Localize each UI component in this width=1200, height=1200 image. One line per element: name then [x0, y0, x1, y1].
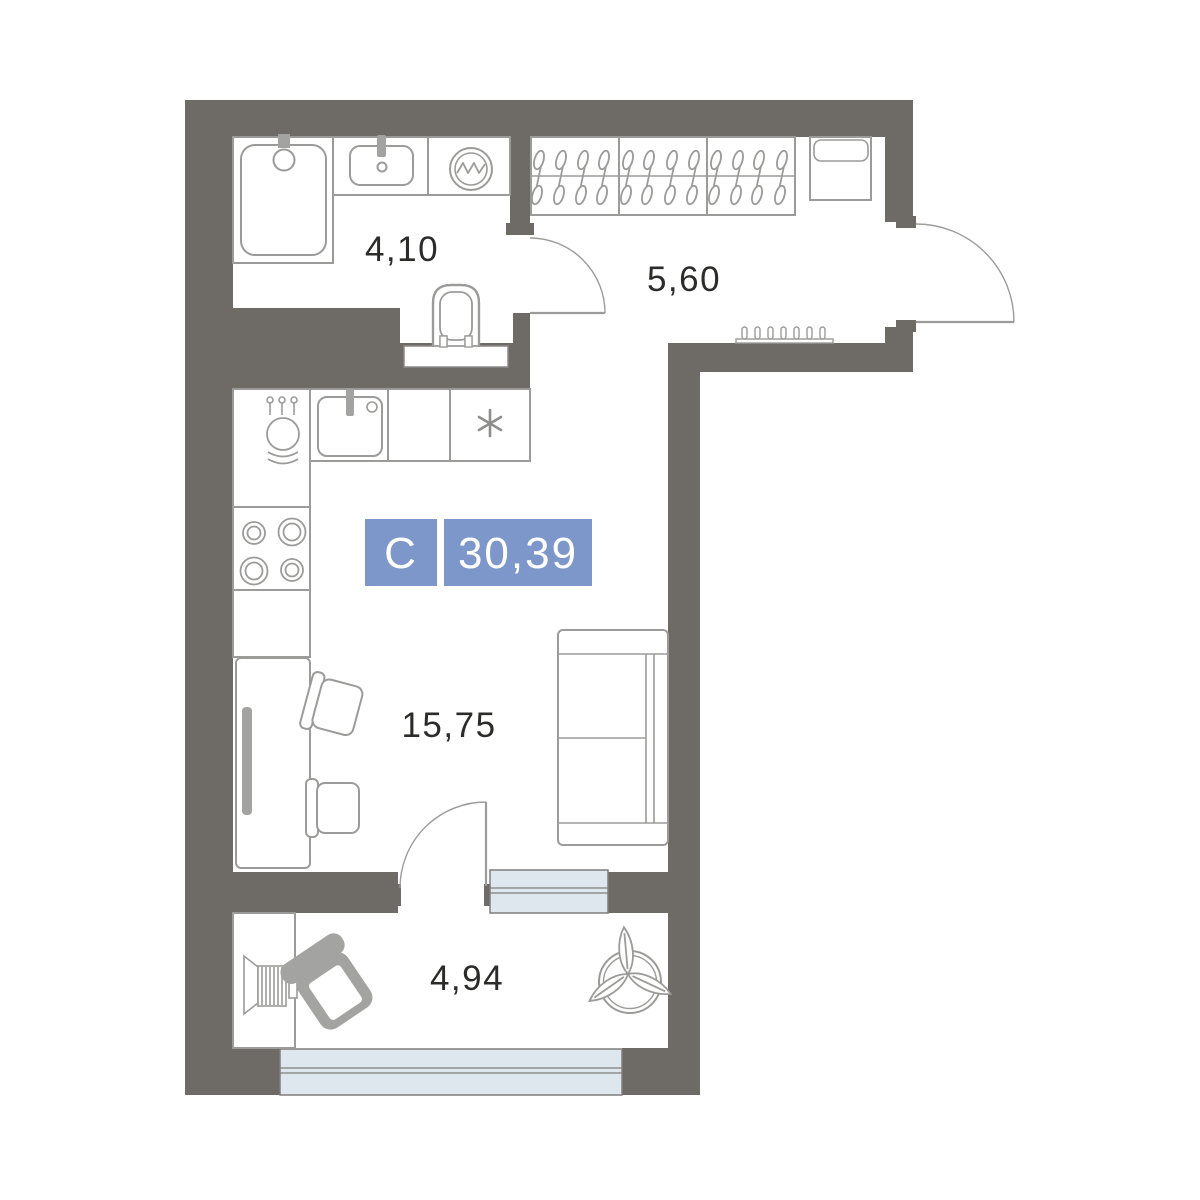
balcony-door-swing-arc [400, 802, 486, 888]
radiator-fin [755, 327, 760, 339]
floor-plan-svg: 4,10 5,60 15,75 4,94 С 30,39 [0, 0, 1200, 1200]
chair [306, 779, 359, 837]
toilet-foot [440, 336, 447, 347]
interior-window-glass [490, 870, 608, 913]
bathroom-hallway-wall-stub [510, 137, 530, 233]
radiator [736, 327, 833, 343]
total-area-value: 30,39 [458, 529, 578, 578]
dining-table [236, 658, 310, 868]
room-label-bathroom: 4,10 [365, 230, 439, 269]
main-right-wall [668, 343, 700, 1095]
radiator-fin [794, 327, 799, 339]
bathtub-faucet-icon [278, 134, 290, 148]
livingroom-bottom-wall-left [233, 872, 398, 913]
livingroom-bottom-wall-right [608, 872, 668, 913]
bathroom-sink-faucet-icon [377, 135, 386, 157]
bathtub-inner [241, 145, 326, 255]
balcony-window [280, 1049, 622, 1095]
balcony-bottom-wall-right [622, 1048, 700, 1095]
radiator-fin [781, 327, 786, 339]
plant-leaves [586, 927, 674, 1007]
kitchen-sink-faucet-icon [346, 389, 354, 416]
radiator-fin [820, 327, 825, 339]
interior-window [490, 870, 608, 913]
entrance-jamb-cap-top [896, 216, 916, 228]
entrance-door-swing-arc [916, 224, 1014, 322]
bathroom-door-swing-arc [530, 238, 605, 313]
entrance-door [916, 224, 1014, 322]
radiator-fin [768, 327, 773, 339]
balcony-bottom-wall-left [185, 1048, 280, 1095]
balcony-door [400, 802, 486, 888]
left-wall [185, 100, 233, 1095]
floor-plan-canvas: 4,10 5,60 15,75 4,94 С 30,39 [0, 0, 1200, 1200]
sofa-bed [558, 630, 668, 845]
tv-icon [242, 707, 252, 815]
hallway-cabinet [810, 137, 871, 200]
bathroom-door [530, 238, 605, 313]
toilet-platform [404, 346, 508, 367]
toilet-foot [465, 336, 472, 347]
radiator-fin [807, 327, 812, 339]
plant [586, 927, 674, 1013]
chair-seat [317, 783, 359, 833]
radiator-fin [742, 327, 747, 339]
hallway-bottom-wall [668, 343, 913, 372]
unit-type-label: С [384, 529, 418, 578]
right-wall-upper [885, 137, 913, 222]
bathroom-door-jamb-cap [506, 223, 534, 235]
balcony-window-glass [280, 1049, 622, 1095]
hallway-cabinet-top [814, 140, 868, 161]
top-wall [185, 100, 913, 137]
bathtub [233, 134, 333, 263]
kitchen-sink [318, 389, 382, 456]
room-label-hallway: 5,60 [647, 260, 721, 299]
room-label-balcony: 4,94 [430, 959, 504, 998]
area-badge: С 30,39 [365, 519, 592, 586]
room-label-living-room: 15,75 [401, 706, 496, 745]
